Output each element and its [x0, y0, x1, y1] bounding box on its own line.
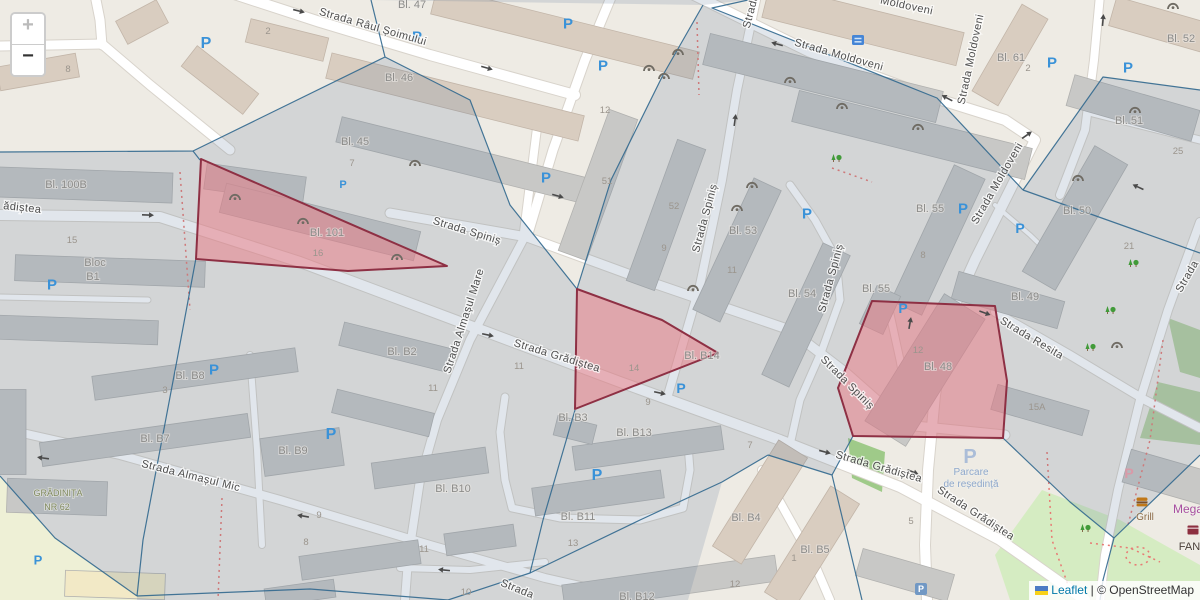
block-label: Bl. 51 — [1115, 115, 1143, 127]
housenumber-label: 8 — [65, 64, 70, 75]
housenumber-label: 12 — [913, 345, 924, 356]
block-label: Bl. 47 — [398, 0, 426, 11]
poi-label: Mega — [1173, 502, 1200, 516]
housenumber-label: 9 — [645, 397, 650, 408]
parking-pink-icon: P — [1124, 465, 1133, 481]
housenumber-label: 11 — [727, 265, 737, 276]
atm-icon — [852, 35, 864, 45]
block-label: Bl. B14 — [684, 350, 719, 362]
housenumber-label: 2 — [265, 26, 270, 37]
housenumber-label: 12 — [730, 579, 741, 590]
housenumber-label: 15A — [1029, 402, 1047, 413]
zoom-out-button[interactable]: − — [12, 45, 44, 75]
block-label: Bl. 53 — [729, 225, 757, 237]
block-label: Bloc — [84, 257, 106, 269]
housenumber-label: 52 — [669, 201, 680, 212]
housenumber-label: 51 — [602, 176, 613, 187]
parking-icon: P — [1015, 220, 1024, 236]
housenumber-label: 5 — [908, 516, 913, 527]
housenumber-label: 21 — [1124, 241, 1135, 252]
poi-label: Parcare — [953, 467, 988, 478]
parking-icon: P — [802, 205, 812, 222]
highlight-bl-48[interactable] — [838, 301, 1007, 438]
block-label: Bl. B11 — [561, 511, 596, 523]
block-label: Bl. 46 — [385, 72, 413, 84]
housenumber-label: 13 — [568, 538, 579, 549]
housenumber-label: 12 — [600, 105, 611, 116]
block-label: Bl. 52 — [1167, 33, 1195, 45]
map-viewport[interactable]: PPPPPPPPPPPPPPPPPPPPPStrada Râul Șoimulu… — [0, 0, 1200, 600]
parking-icon: P — [898, 300, 907, 316]
poi-label: NR 62 — [44, 502, 70, 512]
parking-icon: P — [676, 380, 685, 396]
housenumber-label: 8 — [303, 537, 308, 548]
shop-icon — [1188, 526, 1199, 535]
housenumber-label: 25 — [1173, 146, 1184, 157]
housenumber-label: 3 — [162, 385, 167, 396]
block-label: Bl. B12 — [619, 591, 654, 600]
housenumber-label: 9 — [661, 243, 666, 254]
map-canvas[interactable]: PPPPPPPPPPPPPPPPPPPPPStrada Râul Șoimulu… — [0, 0, 1200, 600]
parking-lot-p: P — [918, 584, 924, 594]
housenumber-label: 9 — [316, 510, 321, 521]
housenumber-label: 16 — [313, 248, 324, 259]
attribution-separator: | — [1091, 583, 1094, 597]
parking-icon: P — [339, 179, 346, 191]
block-label: Bl. B13 — [616, 427, 651, 439]
poi-label: GRĂDINIȚA — [33, 488, 82, 498]
zoom-in-button[interactable]: + — [12, 14, 44, 45]
block-label: Bl. 101 — [310, 227, 344, 239]
housenumber-label: 2 — [1025, 63, 1030, 74]
parking-icon: P — [598, 57, 608, 74]
block-label: Bl. B3 — [558, 412, 587, 424]
housenumber-label: 1 — [791, 553, 796, 564]
block-label: Bl. 54 — [788, 288, 816, 300]
parking-icon: P — [1047, 54, 1057, 71]
block-label: Bl. B8 — [175, 370, 204, 382]
housenumber-label: 14 — [629, 363, 640, 374]
block-label: Bl. 55 — [916, 203, 944, 215]
zoom-control: + − — [10, 12, 46, 77]
parking-icon: P — [47, 276, 57, 293]
block-label: Bl. B10 — [435, 483, 470, 495]
block-label: Bl. 55 — [862, 283, 890, 295]
poi-label: de reședință — [943, 479, 998, 490]
housenumber-label: 15 — [67, 235, 78, 246]
parking-lot-icon: P — [915, 583, 927, 595]
block-label: Bl. 48 — [924, 361, 952, 373]
housenumber-label: 11 — [428, 383, 438, 394]
leaflet-link[interactable]: Leaflet — [1051, 583, 1087, 597]
parking-icon: P — [326, 426, 337, 443]
parking-area-icon: P — [963, 446, 976, 468]
ukraine-flag-icon — [1035, 586, 1048, 595]
parking-icon: P — [958, 200, 968, 217]
poi-label: Grill — [1136, 512, 1154, 523]
attribution-bar: Leaflet | © OpenStreetMap — [1029, 581, 1200, 600]
block-label: Bl. 49 — [1011, 291, 1039, 303]
block-label: B1 — [86, 271, 99, 283]
block-label: Bl. 45 — [341, 136, 369, 148]
housenumber-label: 7 — [349, 158, 354, 169]
parking-icon: P — [592, 467, 603, 484]
housenumber-label: 7 — [747, 440, 752, 451]
fast-food-icon — [1137, 498, 1148, 507]
block-label: Bl. B4 — [731, 512, 760, 524]
parking-icon: P — [209, 361, 219, 378]
parking-icon: P — [1123, 59, 1133, 76]
parking-icon: P — [201, 35, 212, 52]
block-label: Bl. B2 — [387, 346, 416, 358]
housenumber-label: 11 — [419, 544, 429, 555]
osm-copyright[interactable]: © OpenStreetMap — [1097, 583, 1194, 597]
block-label: Bl. 100B — [45, 179, 87, 191]
poi-label: FANI — [1179, 541, 1200, 553]
housenumber-label: 10 — [461, 587, 472, 598]
parking-icon: P — [541, 169, 551, 186]
housenumber-label: 11 — [514, 361, 524, 372]
block-label: Bl. 50 — [1063, 205, 1091, 217]
block-label: Bl. B7 — [140, 433, 169, 445]
housenumber-label: 8 — [920, 250, 925, 261]
parking-icon: P — [34, 553, 43, 568]
block-label: Bl. 61 — [997, 52, 1025, 64]
block-label: Bl. B5 — [800, 544, 829, 556]
block-label: Bl. B9 — [278, 445, 307, 457]
parking-icon: P — [563, 15, 573, 32]
